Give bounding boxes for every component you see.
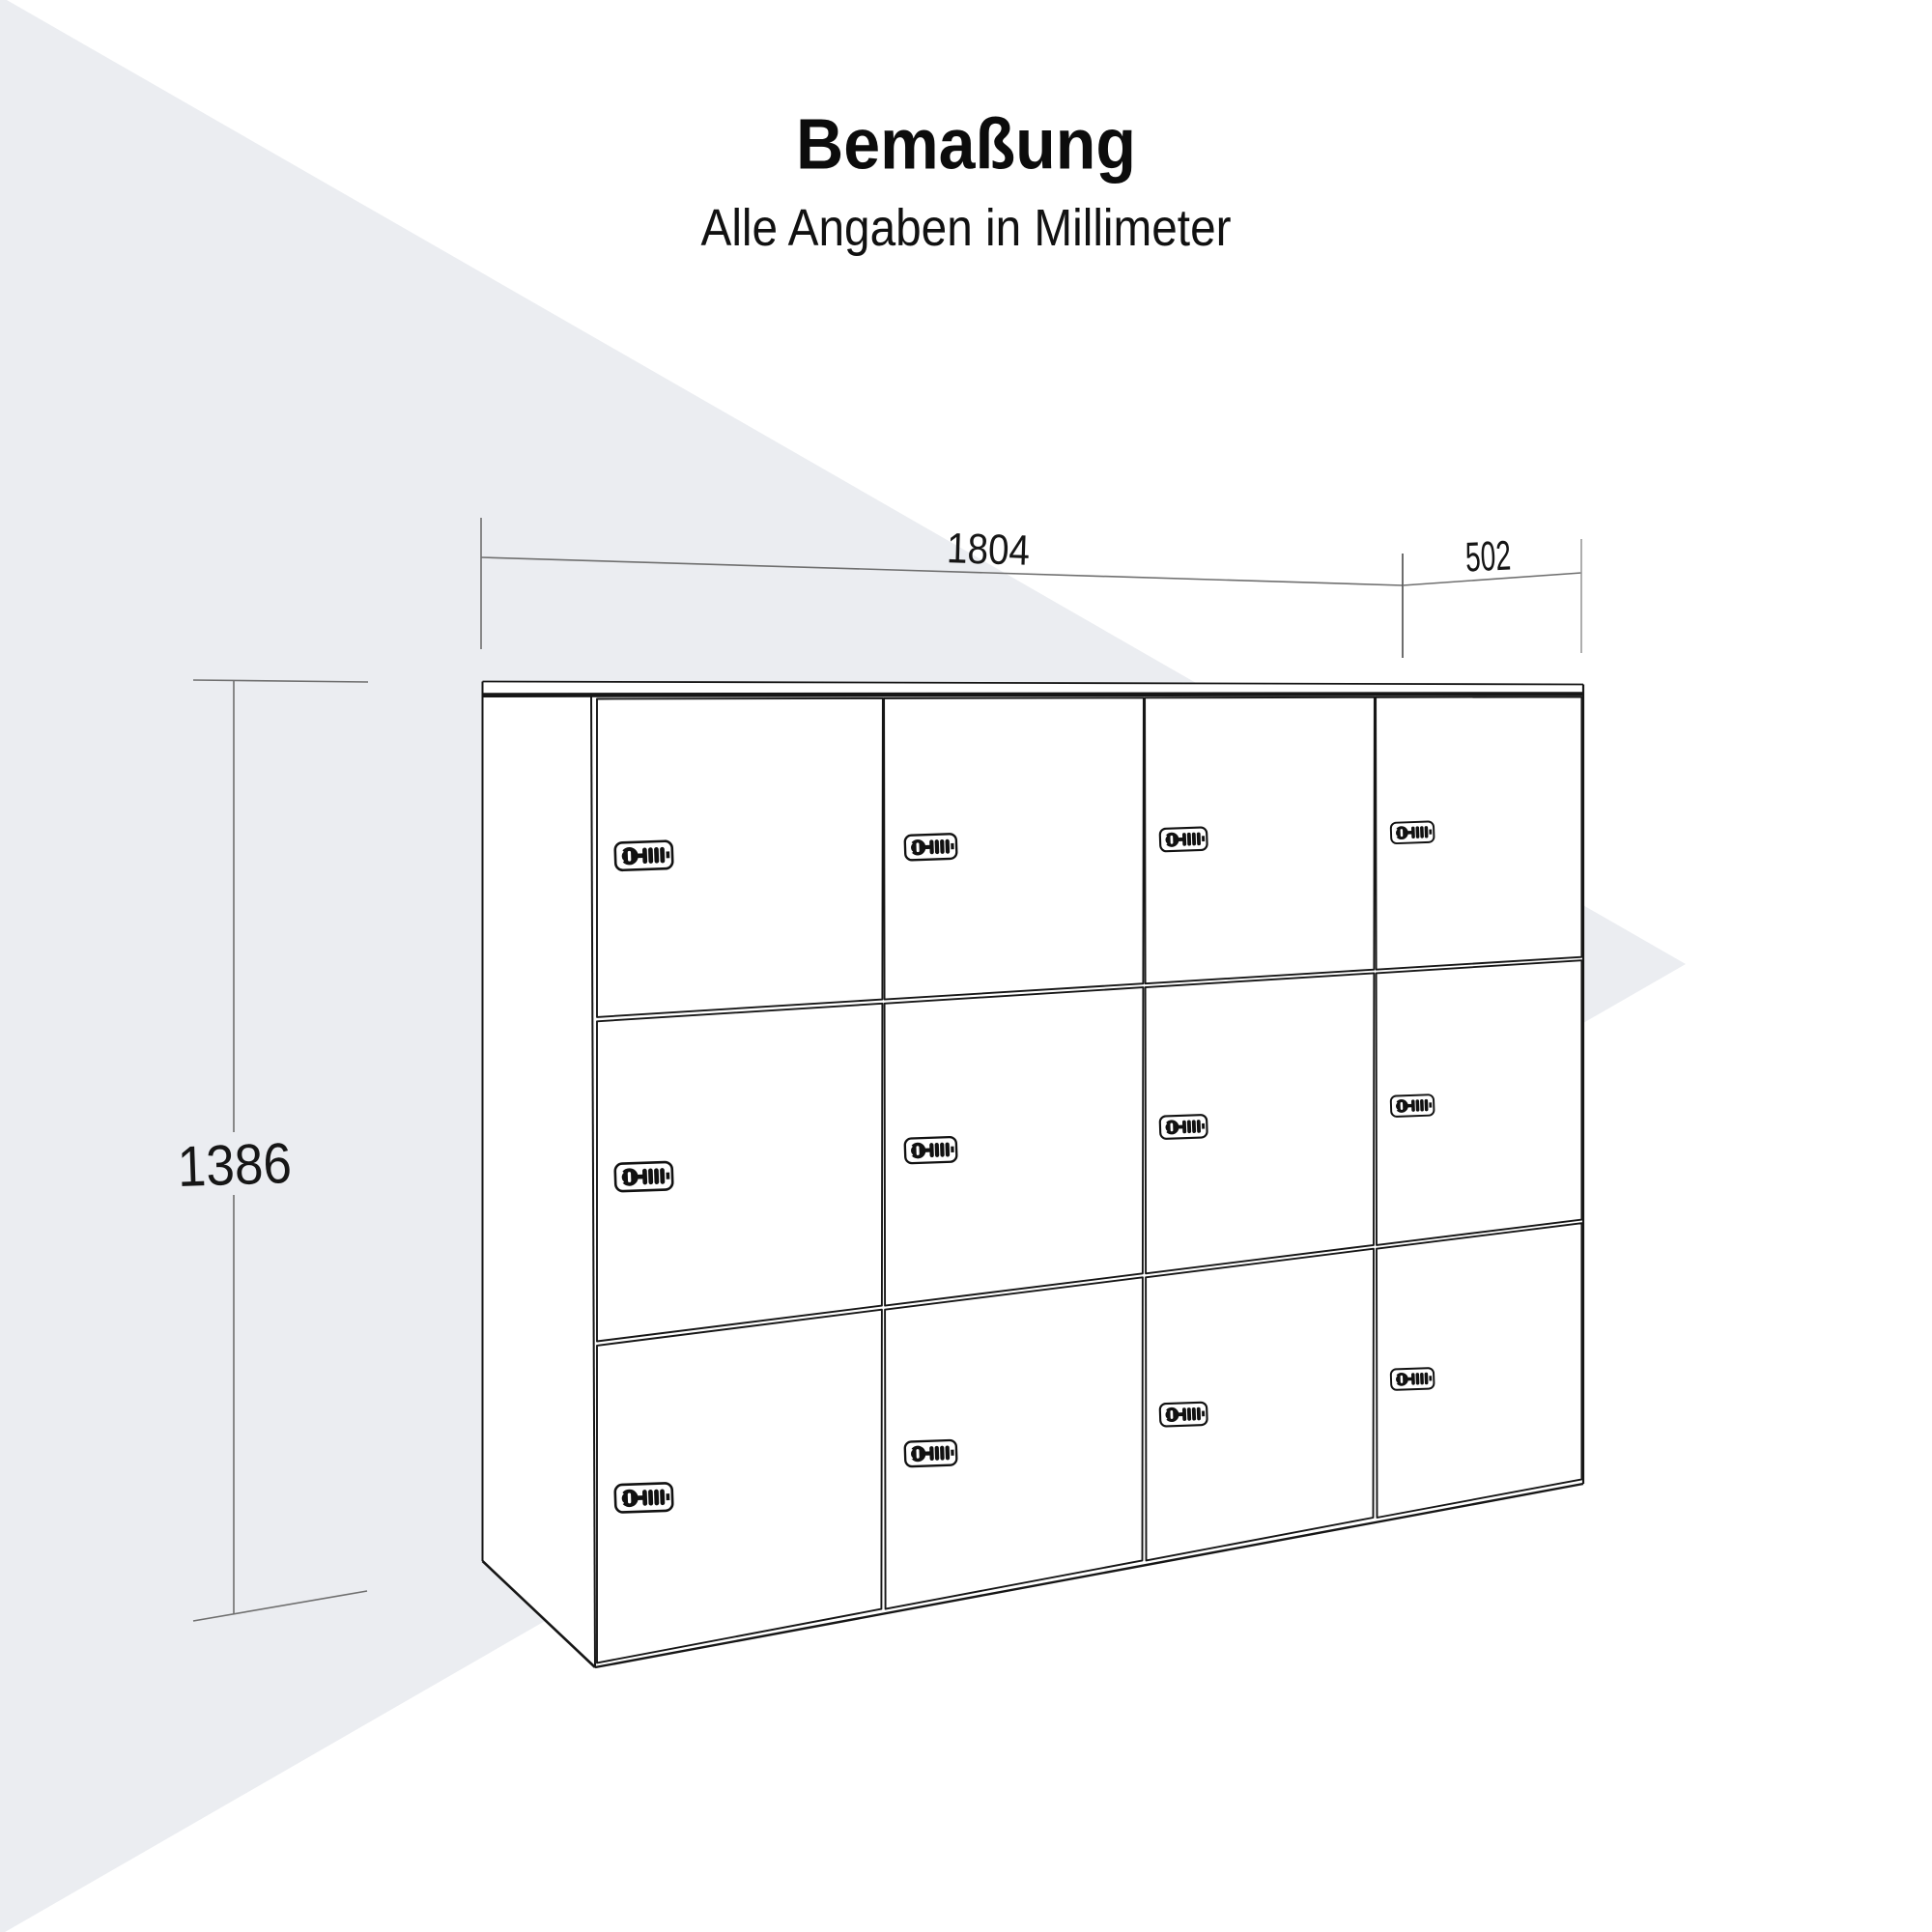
svg-text:Bemaßung: Bemaßung [796, 104, 1136, 185]
svg-text:1804: 1804 [946, 525, 1030, 575]
svg-text:Alle Angaben in Millimeter: Alle Angaben in Millimeter [701, 199, 1232, 257]
svg-text:1386: 1386 [177, 1131, 293, 1199]
svg-text:502: 502 [1464, 532, 1512, 581]
